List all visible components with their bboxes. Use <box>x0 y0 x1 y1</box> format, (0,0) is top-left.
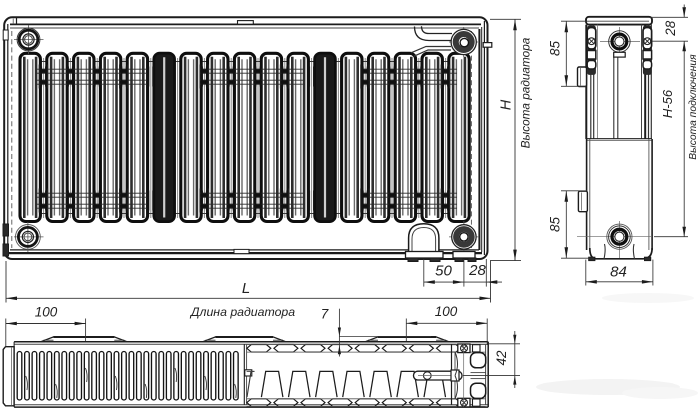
svg-text:Высота радиатора: Высота радиатора <box>518 37 532 148</box>
svg-text:100: 100 <box>435 304 458 319</box>
svg-text:28: 28 <box>663 20 678 37</box>
svg-text:L: L <box>242 280 250 297</box>
svg-text:H-56: H-56 <box>660 89 675 118</box>
svg-text:85: 85 <box>548 41 563 57</box>
svg-text:50: 50 <box>435 263 452 280</box>
svg-text:85: 85 <box>547 217 562 233</box>
svg-text:84: 84 <box>610 264 627 281</box>
svg-text:100: 100 <box>35 305 58 320</box>
svg-text:7: 7 <box>321 307 329 322</box>
svg-text:28: 28 <box>468 262 486 279</box>
svg-text:42: 42 <box>494 350 509 366</box>
svg-text:Длина радиатора: Длина радиатора <box>189 305 295 319</box>
svg-text:Высота подключения: Высота подключения <box>688 54 699 160</box>
svg-text:H: H <box>499 99 515 110</box>
